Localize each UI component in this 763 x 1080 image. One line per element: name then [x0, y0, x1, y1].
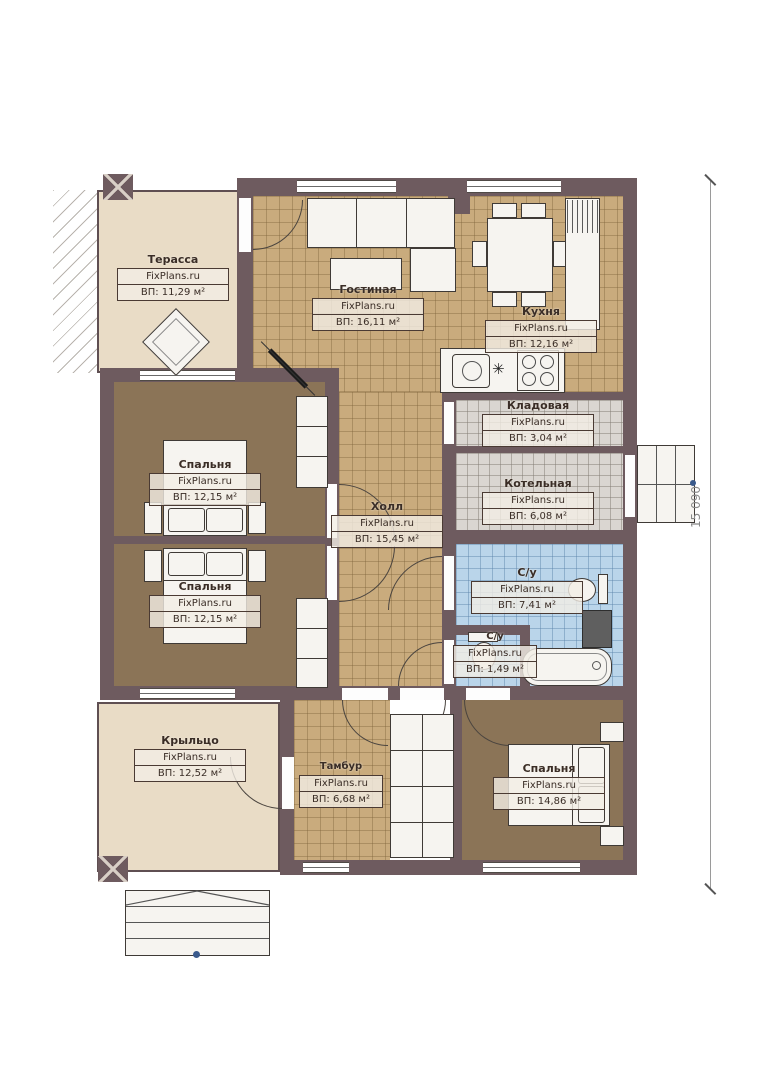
- door-opening: [625, 455, 635, 517]
- room-area: ВП: 6,68 м²: [299, 791, 383, 808]
- room-area: ВП: 12,15 м²: [149, 611, 261, 628]
- watermark: FixPlans.ru: [299, 775, 383, 792]
- room-label-bedroom1: Спальня FixPlans.ru ВП: 12,15 м²: [149, 458, 261, 506]
- room-area: ВП: 6,08 м²: [482, 508, 594, 525]
- room-label-wc: С/у FixPlans.ru ВП: 1,49 м²: [453, 630, 537, 678]
- room-name: Терасса: [117, 253, 229, 266]
- room-area: ВП: 12,15 м²: [149, 489, 261, 506]
- pillow: [206, 552, 243, 576]
- sink-bowl: [462, 361, 482, 381]
- dining-table: [487, 218, 553, 292]
- room-name: Крыльцо: [134, 734, 246, 747]
- room-name: Кухня: [485, 305, 597, 318]
- room-label-bathroom: С/у FixPlans.ru ВП: 7,41 м²: [471, 566, 583, 614]
- side-entrance-steps: [637, 445, 695, 523]
- room-area: ВП: 7,41 м²: [471, 597, 583, 614]
- wall-boiler-bathroom: [448, 530, 623, 544]
- watermark: FixPlans.ru: [149, 595, 261, 612]
- room-name: Холл: [331, 500, 443, 513]
- nightstand: [248, 550, 266, 582]
- front-steps-dot: [193, 951, 200, 958]
- room-label-bedroom2: Спальня FixPlans.ru ВП: 12,15 м²: [149, 580, 261, 628]
- chair: [521, 203, 546, 218]
- wall-storage-boiler: [456, 446, 623, 453]
- terrace-side-hatch: [53, 190, 97, 373]
- front-steps-gable: [125, 889, 270, 907]
- room-name: Котельная: [482, 477, 594, 490]
- dish-rack: [567, 200, 598, 233]
- watermark: FixPlans.ru: [482, 492, 594, 509]
- room-label-living: Гостиная FixPlans.ru ВП: 16,11 м²: [312, 283, 424, 331]
- room-name: Кладовая: [482, 399, 594, 412]
- watermark: FixPlans.ru: [312, 298, 424, 315]
- window: [303, 862, 349, 873]
- room-area: ВП: 16,11 м²: [312, 314, 424, 331]
- room-name: Спальня: [149, 580, 261, 593]
- room-name: Спальня: [149, 458, 261, 471]
- watermark: FixPlans.ru: [149, 473, 261, 490]
- wall-left: [100, 368, 114, 700]
- room-label-hall: Холл FixPlans.ru ВП: 15,45 м²: [331, 500, 443, 548]
- wall-bedroom-divider: [100, 536, 339, 544]
- room-area: ВП: 3,04 м²: [482, 430, 594, 447]
- washing-machine: [582, 610, 612, 648]
- dimension-line: [710, 180, 711, 890]
- window: [467, 180, 561, 193]
- watermark: FixPlans.ru: [134, 749, 246, 766]
- watermark: FixPlans.ru: [493, 777, 605, 794]
- window: [140, 688, 235, 699]
- room-label-boiler: Котельная FixPlans.ru ВП: 6,08 м²: [482, 477, 594, 525]
- room-area: ВП: 12,16 м²: [485, 336, 597, 353]
- window: [483, 862, 580, 873]
- door-opening: [400, 688, 444, 700]
- room-name: Спальня: [493, 762, 605, 775]
- dimension-label: 15 090: [689, 477, 703, 537]
- room-name: С/у: [471, 566, 583, 579]
- watermark: FixPlans.ru: [453, 645, 537, 662]
- watermark: FixPlans.ru: [485, 320, 597, 337]
- pillow: [168, 552, 205, 576]
- stove: [517, 350, 559, 391]
- window: [140, 370, 235, 381]
- room-name: Тамбур: [299, 760, 383, 773]
- axis-marker: [103, 174, 133, 200]
- door-opening: [282, 757, 294, 809]
- room-area: ВП: 11,29 м²: [117, 284, 229, 301]
- nightstand: [600, 826, 624, 846]
- pillow: [168, 508, 205, 532]
- floor-plan: ✳ 15 090 Терасса FixPlans.ru ВП: 11,29 м…: [0, 0, 763, 1080]
- chair: [472, 241, 487, 267]
- window: [297, 180, 396, 193]
- sofa: [307, 198, 455, 248]
- room-label-kitchen: Кухня FixPlans.ru ВП: 12,16 м²: [485, 305, 597, 353]
- vent-symbol: ✳: [492, 360, 505, 378]
- wardrobe: [296, 598, 328, 688]
- door-opening: [239, 198, 251, 252]
- room-label-porch: Крыльцо FixPlans.ru ВП: 12,52 м²: [134, 734, 246, 782]
- nightstand: [600, 722, 624, 742]
- axis-marker: [98, 856, 128, 882]
- nightstand: [144, 550, 162, 582]
- door-opening: [444, 556, 454, 610]
- door-opening: [444, 402, 454, 444]
- room-label-bedroom3: Спальня FixPlans.ru ВП: 14,86 м²: [493, 762, 605, 810]
- watermark: FixPlans.ru: [482, 414, 594, 431]
- closet-cabinets: [390, 714, 454, 858]
- room-area: ВП: 1,49 м²: [453, 661, 537, 678]
- room-label-vestibule: Тамбур FixPlans.ru ВП: 6,68 м²: [299, 760, 383, 808]
- watermark: FixPlans.ru: [117, 268, 229, 285]
- chair: [492, 203, 517, 218]
- wardrobe: [296, 396, 328, 488]
- room-label-storage: Кладовая FixPlans.ru ВП: 3,04 м²: [482, 399, 594, 447]
- room-name: С/у: [453, 630, 537, 643]
- toilet-tank: [598, 574, 608, 604]
- door-opening: [342, 688, 388, 700]
- room-area: ВП: 12,52 м²: [134, 765, 246, 782]
- bathtub-drain: [592, 661, 601, 670]
- room-name: Гостиная: [312, 283, 424, 296]
- room-label-terrace: Терасса FixPlans.ru ВП: 11,29 м²: [117, 253, 229, 301]
- pillow: [206, 508, 243, 532]
- door-opening: [466, 688, 510, 700]
- wall-right: [623, 178, 637, 875]
- room-area: ВП: 14,86 м²: [493, 793, 605, 810]
- watermark: FixPlans.ru: [331, 515, 443, 532]
- room-area: ВП: 15,45 м²: [331, 531, 443, 548]
- door-opening: [327, 546, 337, 600]
- nightstand: [248, 502, 266, 534]
- watermark: FixPlans.ru: [471, 581, 583, 598]
- nightstand: [144, 502, 162, 534]
